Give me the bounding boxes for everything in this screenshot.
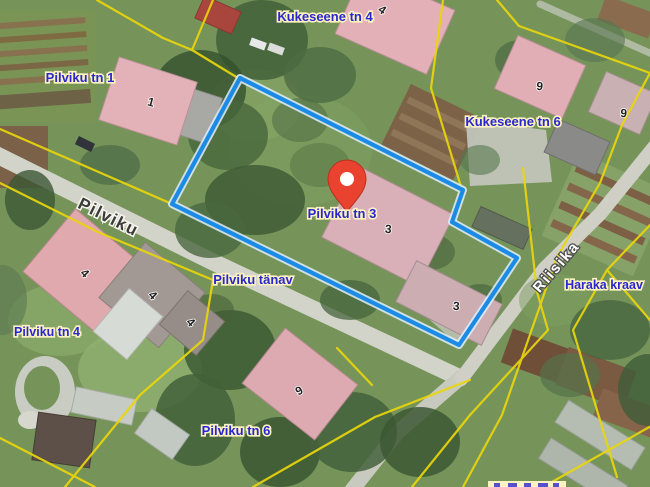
address-label-pilviku-tn-3: Pilviku tn 3 [308, 206, 377, 221]
clipped-label-bottom [488, 481, 566, 487]
address-label-pilviku-tanav: Pilviku tänav [213, 272, 293, 287]
aerial-map-canvas[interactable]: 4 1 6 6 3 3 4 4 4 6 Pilviku Riisika Kuke… [0, 0, 650, 487]
address-label-haraka-kraav: Haraka kraav [565, 278, 643, 292]
address-label-pilviku-tn-4: Pilviku tn 4 [14, 325, 80, 339]
address-label-pilviku-tn-1: Pilviku tn 1 [46, 70, 115, 85]
address-label-pilviku-tn-6: Pilviku tn 6 [202, 423, 271, 438]
marker-pin-hole [340, 172, 354, 186]
address-label-kukeseene-tn-4: Kukeseene tn 4 [277, 9, 373, 24]
address-label-kukeseene-tn-6: Kukeseene tn 6 [465, 114, 560, 129]
